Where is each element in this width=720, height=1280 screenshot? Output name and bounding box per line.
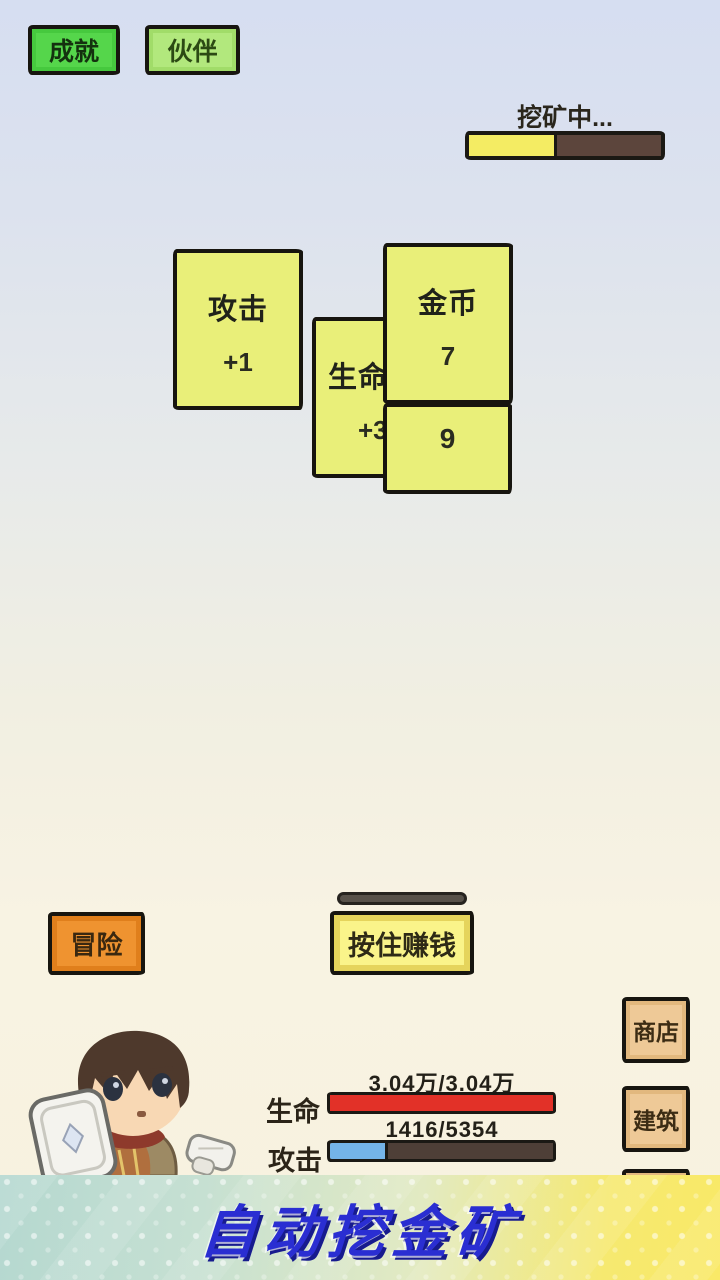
card-gold-value: 7: [441, 341, 455, 372]
card-gold-title: 金币: [418, 280, 478, 322]
adventure-button[interactable]: 冒险: [48, 912, 145, 975]
hp-label: 生命: [266, 1090, 320, 1129]
card-attack-value: +1: [223, 347, 253, 378]
earn-cooldown-bar: [337, 892, 467, 905]
mining-progress-fill: [469, 135, 557, 156]
card-life-value: +3: [316, 415, 388, 446]
atk-bar: [327, 1140, 556, 1162]
achievements-button[interactable]: 成就: [28, 25, 120, 75]
promo-banner-text: 自动挖金矿: [197, 1187, 523, 1269]
promo-banner[interactable]: 自动挖金矿: [0, 1175, 720, 1280]
hold-to-earn-button[interactable]: 按住赚钱: [330, 911, 474, 975]
atk-label: 攻击: [268, 1139, 322, 1178]
card-attack[interactable]: 攻击 +1: [173, 249, 303, 410]
mining-status-text: 挖矿中...: [465, 98, 665, 134]
atk-bar-fill: [330, 1143, 388, 1159]
card-attack-title: 攻击: [208, 286, 268, 328]
card-gold[interactable]: 金币 7: [383, 243, 513, 404]
shop-button[interactable]: 商店: [622, 997, 690, 1063]
card-gold-partial[interactable]: 9: [383, 403, 512, 494]
hero-character: [20, 1026, 238, 1176]
game-screen: 成就 伙伴 挖矿中... 攻击 +1 生命 +3 9 金币 7 冒险 按住赚钱 …: [0, 0, 720, 1280]
mining-progress-bar: [465, 131, 665, 160]
partners-button[interactable]: 伙伴: [145, 25, 240, 75]
hp-bar-fill: [330, 1095, 553, 1111]
card-life-title: 生命: [316, 354, 388, 396]
build-button[interactable]: 建筑: [622, 1086, 690, 1152]
hp-bar: [327, 1092, 556, 1114]
card-gold-partial-value: 9: [440, 423, 456, 455]
